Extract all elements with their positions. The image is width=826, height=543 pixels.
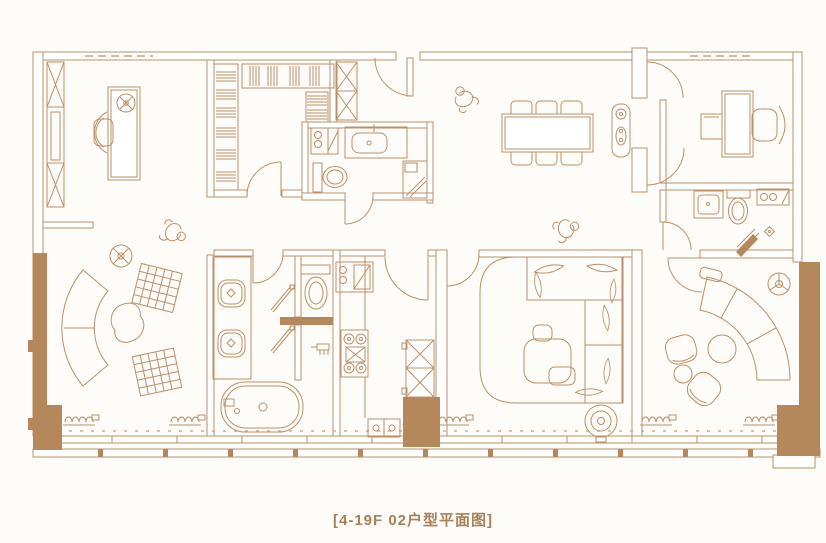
desk-chair-icon <box>752 106 785 144</box>
sink-counter-icon <box>345 124 407 158</box>
round-coffee-table-icon <box>708 335 736 363</box>
lounge-door-icon <box>668 258 702 292</box>
bath1-door-icon <box>345 196 373 224</box>
coffee-table-icon <box>111 303 144 342</box>
shower-head-icon <box>311 344 329 355</box>
rug-icon <box>132 348 181 396</box>
double-vanity-icon <box>213 257 251 379</box>
human-figure-icon <box>158 219 189 249</box>
armchair-icon <box>524 325 575 385</box>
washer-icon <box>311 128 338 154</box>
floor-drain-icon <box>765 227 775 237</box>
dining-group <box>449 82 630 244</box>
master-bath-group <box>213 257 330 432</box>
wardrobe-icon <box>47 62 64 207</box>
refrigerator-icon <box>402 340 434 397</box>
plan-caption: [4-19F 02户型平面图] <box>0 509 826 530</box>
bedroom-door-icon <box>447 254 479 286</box>
bath2-door-icon <box>663 222 691 250</box>
study2-group <box>701 91 785 157</box>
entry-door-icon <box>375 58 413 96</box>
toilet-icon <box>727 190 750 224</box>
dining-table-icon <box>502 114 593 152</box>
ceiling-fan-icon <box>768 273 790 295</box>
floor-plan-canvas <box>0 0 826 543</box>
toilet-icon <box>301 265 330 309</box>
sliding-door-panel-icon <box>612 104 630 157</box>
bathroom1-group <box>311 124 427 198</box>
kitchen-door-icon <box>385 257 428 300</box>
curved-sofa-icon <box>699 266 790 380</box>
lounge-group <box>663 266 790 410</box>
rug-icon <box>132 264 182 313</box>
human-figure-icon <box>552 215 583 244</box>
balcony-edge <box>33 449 820 468</box>
kitchen-sink-icon <box>368 419 400 437</box>
shoe-cabinet-icon <box>336 62 357 120</box>
kitchen-stove-icon <box>341 330 368 377</box>
bathtub-icon <box>221 382 303 432</box>
kitchen-cabinet-icon <box>336 262 373 292</box>
lounge-chair-icon <box>683 368 725 410</box>
lounge-chair-icon <box>663 333 699 367</box>
water-heater-icon <box>757 189 789 205</box>
sink-icon <box>694 191 723 218</box>
floor-plan-page: [4-19F 02户型平面图] <box>0 0 826 543</box>
human-figure-icon <box>449 82 480 114</box>
master-bedroom-group <box>480 257 623 442</box>
closet-door-icon <box>247 162 281 196</box>
study2-door-icon <box>647 62 683 98</box>
master-bath-door-icon <box>253 253 283 283</box>
shower-icon <box>403 161 427 198</box>
living-room-group <box>62 245 182 396</box>
side-stool-icon <box>674 365 692 383</box>
bathroom2-group <box>694 189 789 257</box>
curved-sofa-icon <box>62 270 108 386</box>
study1-group <box>47 62 189 248</box>
round-side-table-icon <box>110 245 132 267</box>
toilet-icon <box>313 163 347 192</box>
